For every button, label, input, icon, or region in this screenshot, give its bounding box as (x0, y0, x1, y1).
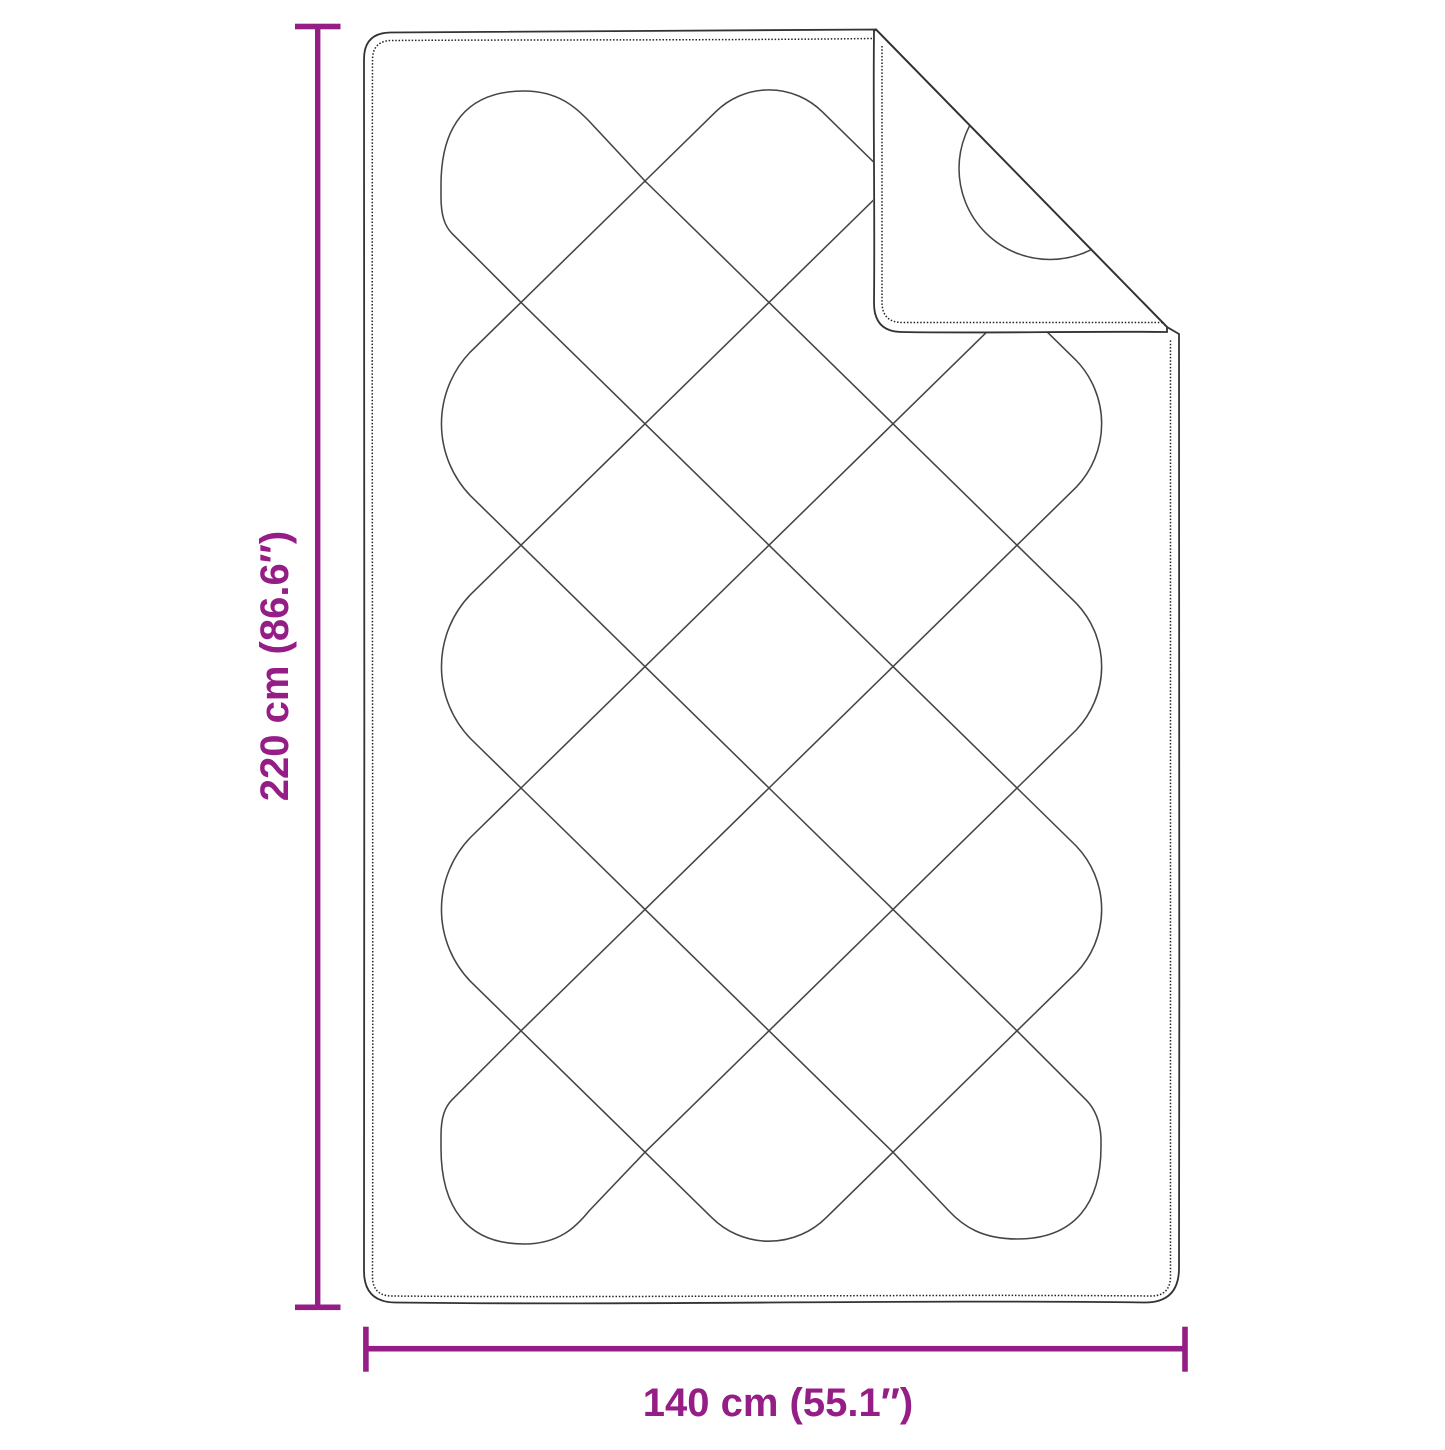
svg-text:140 cm (55.1″): 140 cm (55.1″) (643, 1381, 913, 1425)
svg-text:220 cm (86.6″): 220 cm (86.6″) (253, 531, 297, 801)
